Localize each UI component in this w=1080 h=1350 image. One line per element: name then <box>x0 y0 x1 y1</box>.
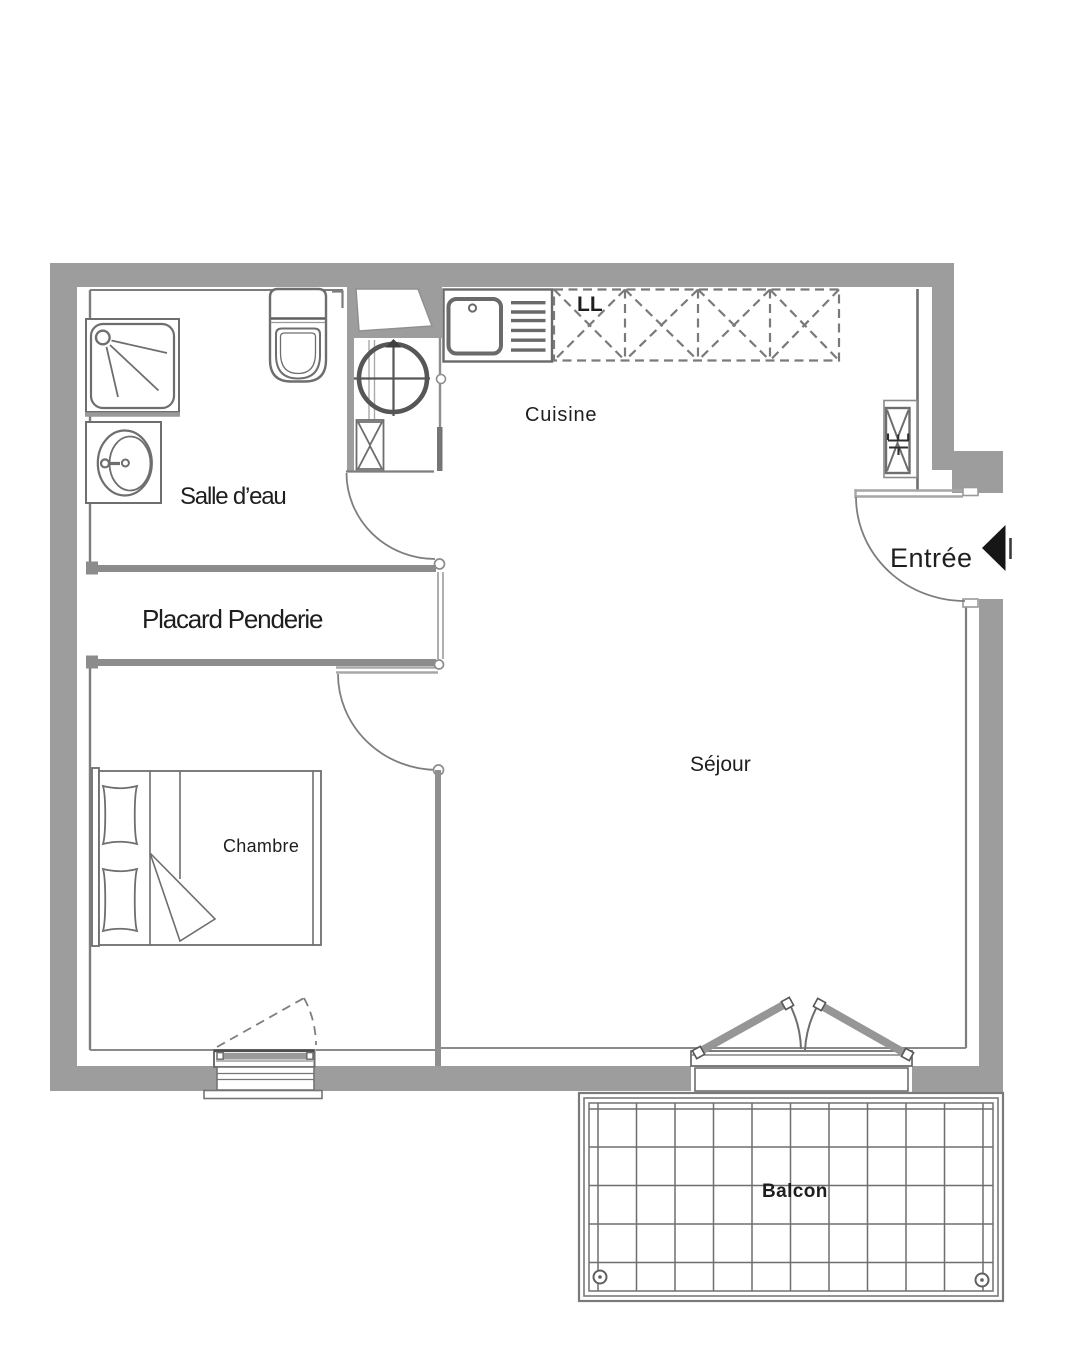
svg-text:Balcon: Balcon <box>762 1181 828 1202</box>
svg-text:Cuisine: Cuisine <box>525 404 597 426</box>
svg-text:Placard Penderie: Placard Penderie <box>142 604 323 634</box>
svg-text:Séjour: Séjour <box>690 753 751 776</box>
svg-text:Chambre: Chambre <box>223 836 299 856</box>
svg-text:Salle d’eau: Salle d’eau <box>180 483 286 510</box>
svg-text:Entrée: Entrée <box>890 543 973 573</box>
svg-text:LL: LL <box>577 293 603 316</box>
